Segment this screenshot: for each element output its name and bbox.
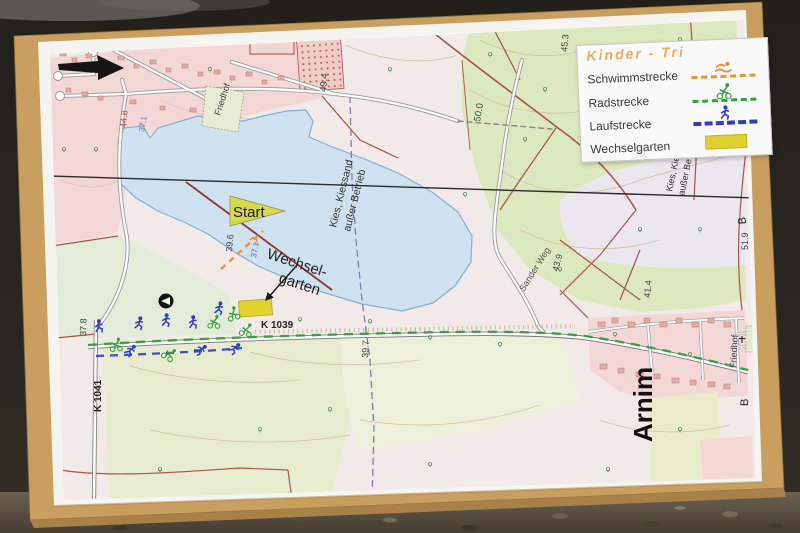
town-label-arnim: Arnim [628,367,658,442]
swim-dash-line [691,74,755,80]
cemetery-label-right: Friedhof [728,334,740,368]
elevation-label: 51.9 [740,232,750,250]
road-marker-b-north: B [736,216,749,224]
elevation-label: 45.3 [559,34,570,52]
cyclist-icon [712,81,737,99]
run-dash-line [693,119,757,126]
road-k1039-label: K 1039 [261,320,294,331]
field-south-center [102,334,350,500]
start-label: Start [233,204,266,221]
background-glare [0,0,270,21]
swimmer-icon [710,60,737,76]
photo-background: Start Wechsel- garten Arnim Friedhof Fri… [0,0,800,533]
legend: Kinder - Tri Schwimmstrecke Radstrecke L… [576,37,773,163]
direction-marker [159,294,174,309]
wechselgarten-swatch [705,134,748,150]
elevation-label: 41.4 [642,280,653,298]
elevation-label: 44.8 [118,110,129,128]
elevation-label: 39.6 [224,234,235,252]
runner-icon [714,103,737,121]
road-k1041-label: K 1041 [93,379,104,412]
road-marker-b-south: B [739,399,751,406]
wechselgarten-marker [238,299,272,317]
elevation-label: 49.4 [318,73,331,92]
elevation-label: 37.8 [78,318,89,336]
legend-label-transition: Wechselgarten [590,138,690,156]
elevation-label: 39.7 [360,340,371,358]
